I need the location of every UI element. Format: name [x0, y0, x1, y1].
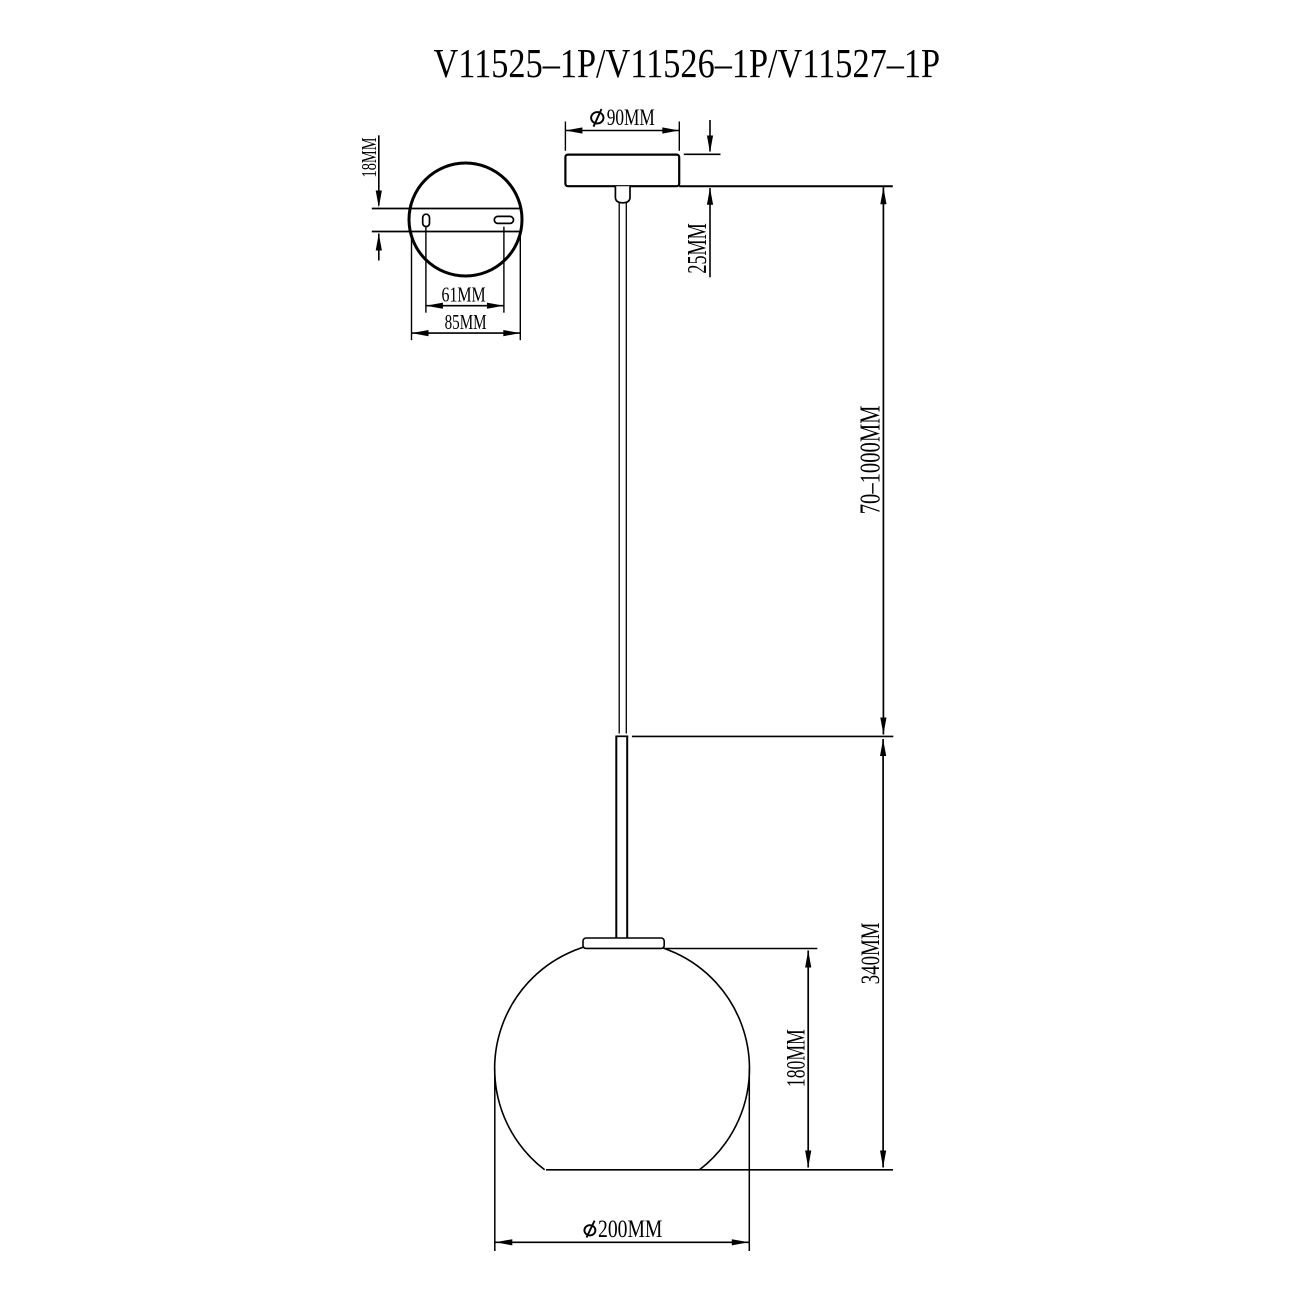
svg-text:340MM: 340MM: [855, 923, 885, 985]
svg-text:85MM: 85MM: [445, 310, 487, 334]
svg-text:25MM: 25MM: [682, 223, 712, 274]
svg-text:61MM: 61MM: [442, 283, 486, 307]
svg-text:180MM: 180MM: [781, 1029, 811, 1087]
svg-text:70–1000MM: 70–1000MM: [856, 405, 887, 514]
svg-text:90MM: 90MM: [607, 105, 655, 130]
svg-text:200MM: 200MM: [598, 1216, 662, 1243]
svg-text:18MM: 18MM: [357, 138, 381, 178]
svg-text:V11525–1P/V11526–1P/V11527–1P: V11525–1P/V11526–1P/V11527–1P: [434, 41, 941, 86]
